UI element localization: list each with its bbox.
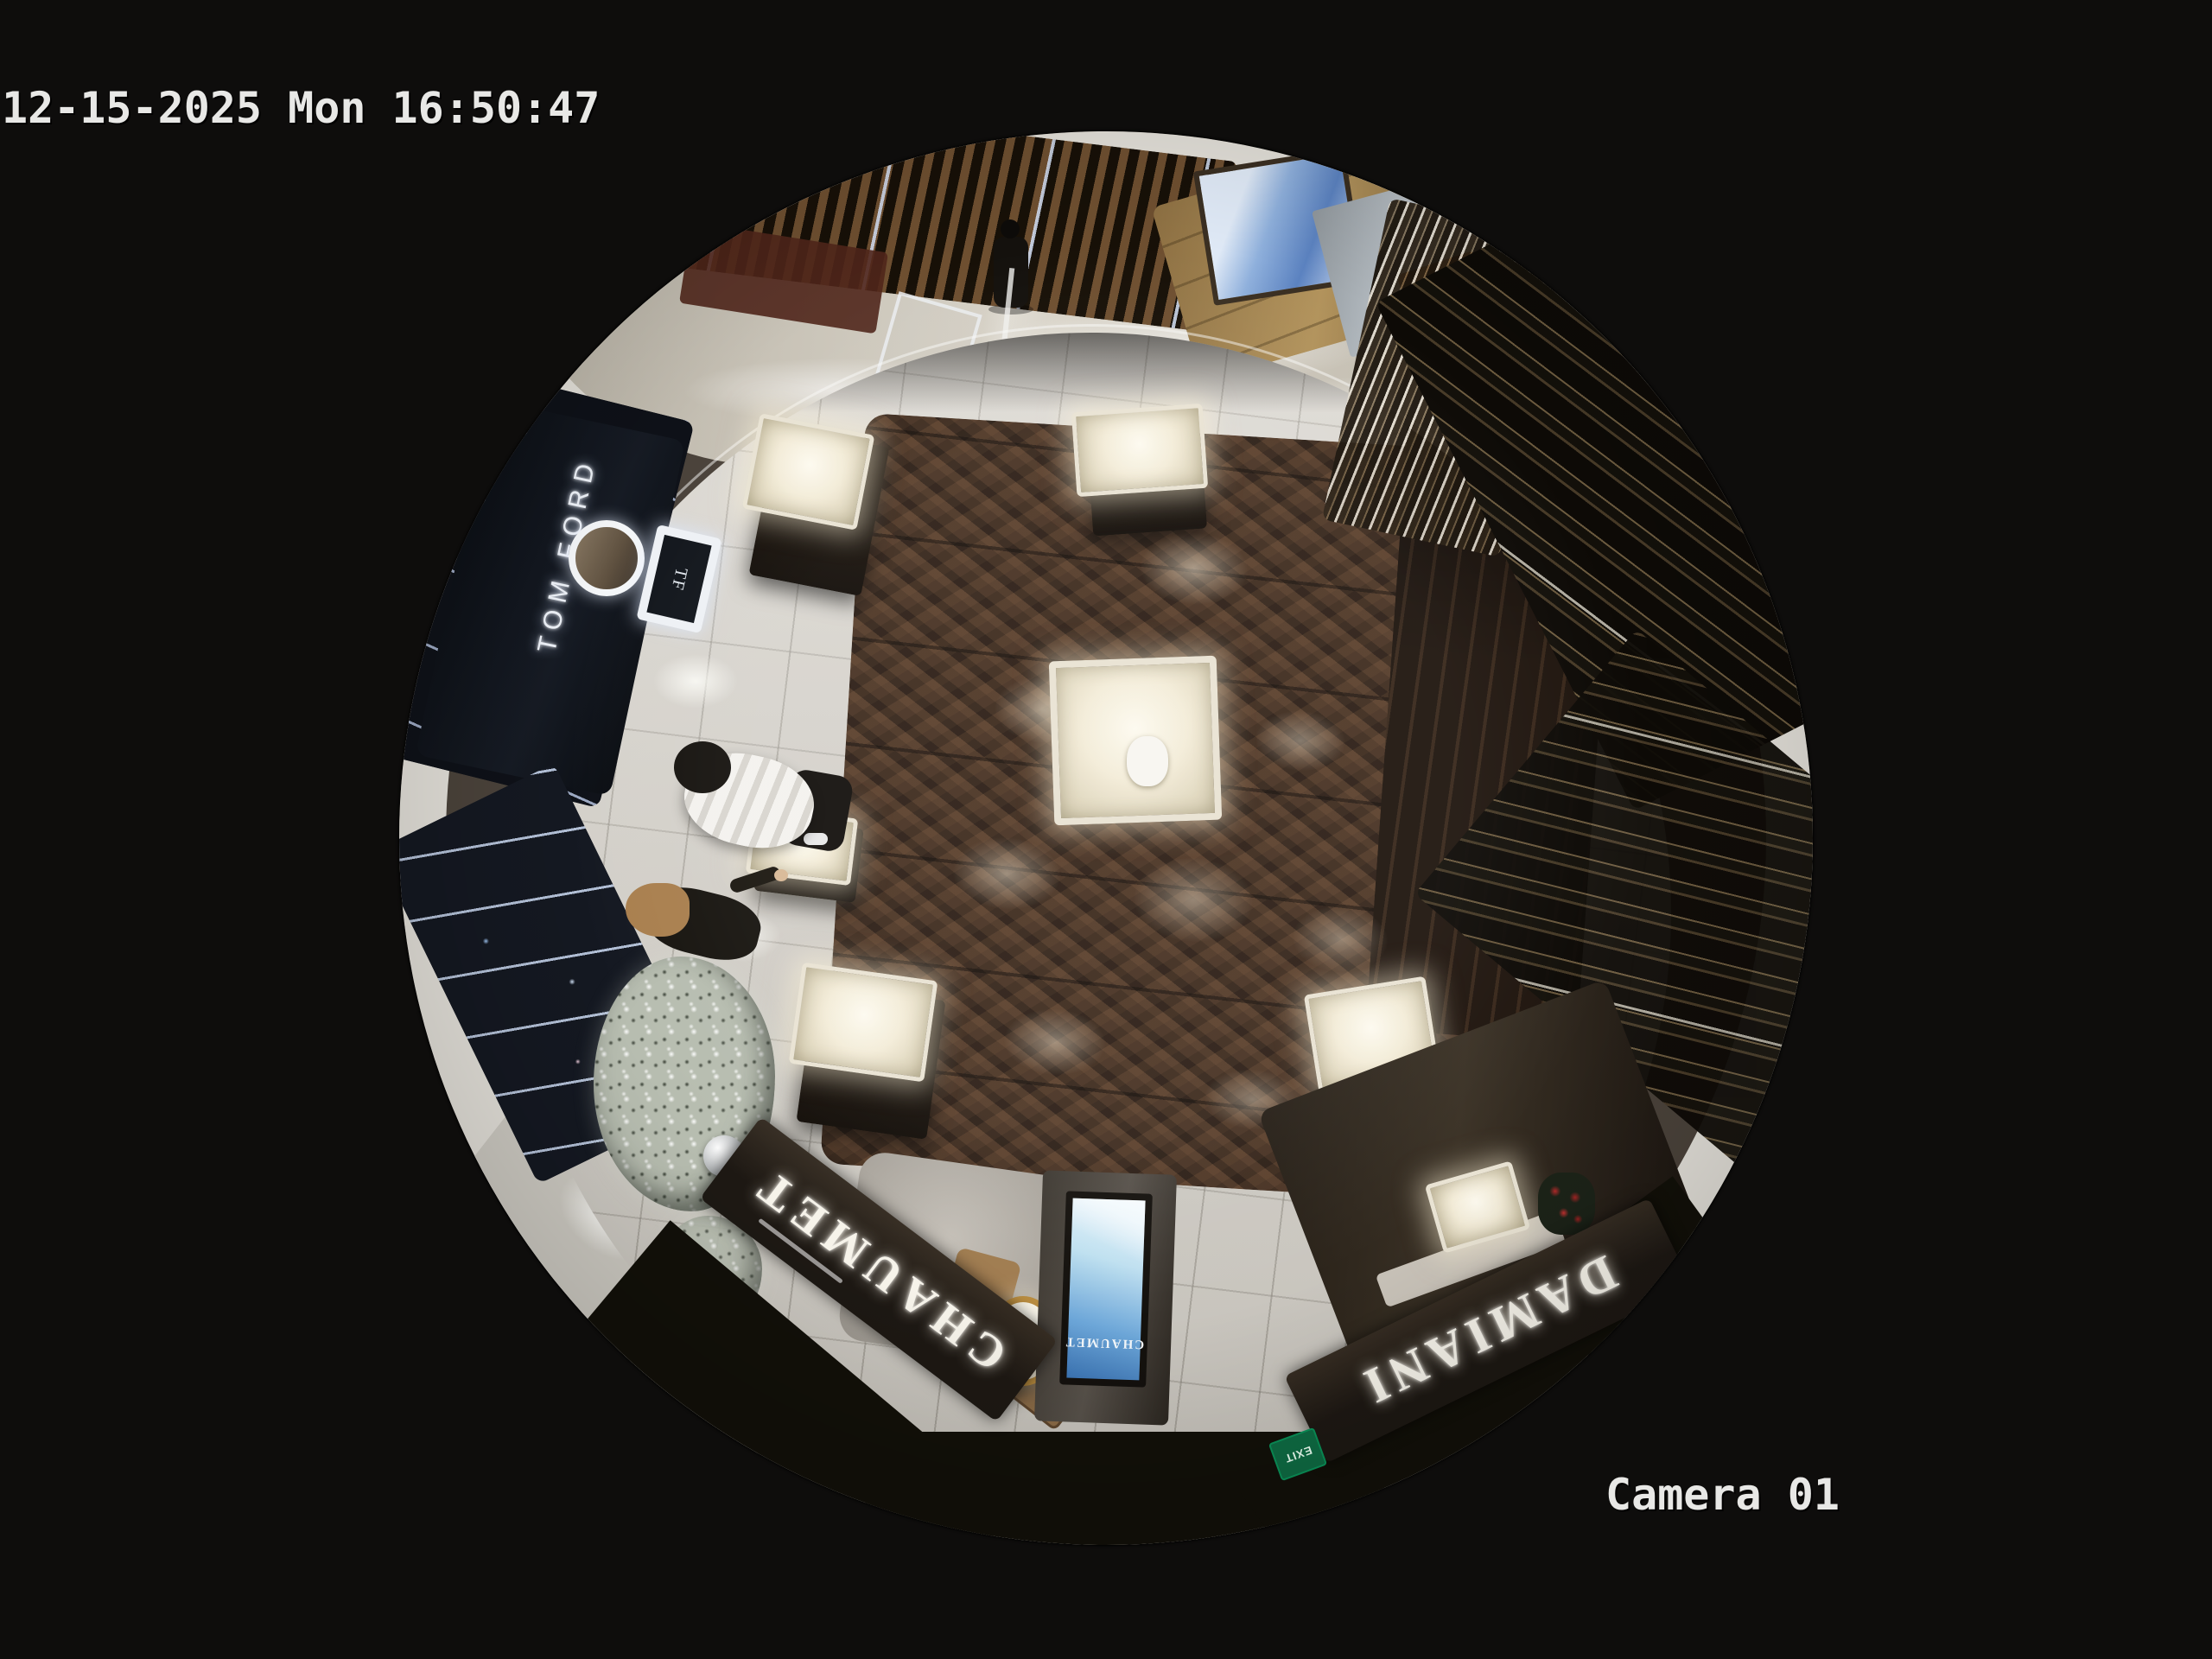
fisheye-view: TOM FORD TF bbox=[399, 131, 1813, 1545]
osd-camera-label: Camera 01 bbox=[1605, 1473, 1840, 1516]
cctv-frame: TOM FORD TF bbox=[0, 0, 2212, 1659]
osd-timestamp: 12-15-2025 Mon 16:50:47 bbox=[2, 86, 600, 130]
lens-vignette bbox=[399, 131, 1813, 1545]
